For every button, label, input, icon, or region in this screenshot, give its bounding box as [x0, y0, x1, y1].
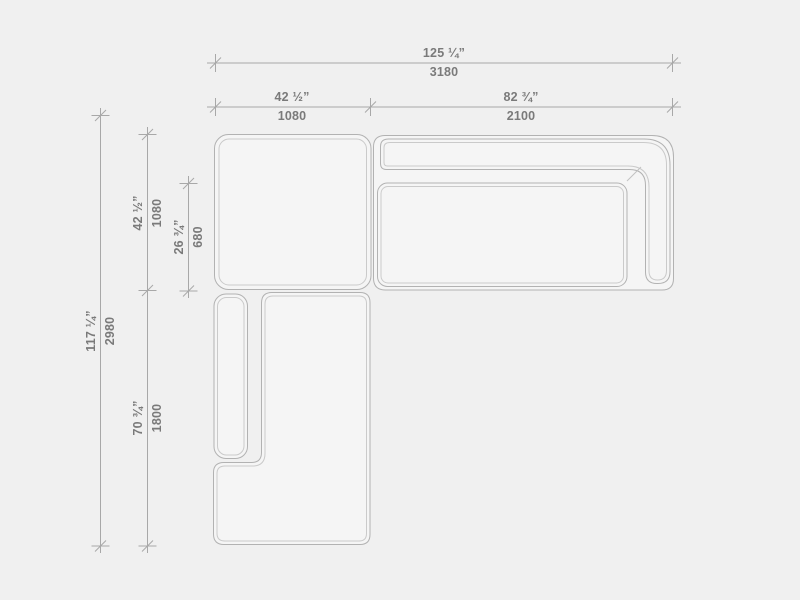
dim-chaise-length-inches: 70 ¾”	[132, 400, 145, 435]
dim-overall-depth-mm: 2980	[104, 316, 117, 345]
chaise-module	[214, 293, 371, 545]
sofa-seat-cushion-outline	[378, 183, 628, 287]
dim-top-module-depth-label: 42 ½” 1080	[132, 195, 164, 230]
dimension-lines	[92, 54, 682, 553]
dim-chaise-length-label: 70 ¾” 1800	[132, 400, 164, 435]
dim-left-module-width-label: 42 ½” 1080	[274, 91, 309, 123]
drawing-svg	[0, 0, 800, 600]
sofa-module	[374, 136, 674, 291]
dim-sofa-width-mm: 2100	[507, 110, 536, 123]
dim-seat-depth-mm: 680	[192, 226, 205, 247]
dim-overall-depth-inches: 117 ¼”	[85, 310, 98, 352]
dim-top-module-depth-inches: 42 ½”	[132, 195, 145, 230]
dim-overall-width-label: 125 ¼” 3180	[423, 47, 465, 79]
dim-overall-depth-label: 117 ¼” 2980	[85, 310, 117, 352]
dim-seat-depth-label: 26 ¾” 680	[173, 219, 205, 254]
dim-chaise-length-mm: 1800	[151, 404, 164, 433]
dim-top-module-depth-mm: 1080	[151, 198, 164, 227]
dim-left-module-width-inches: 42 ½”	[274, 91, 309, 104]
dim-sofa-width-inches: 82 ¾”	[503, 91, 538, 104]
dim-overall-width-inches: 125 ¼”	[423, 47, 465, 60]
ottoman-module	[215, 135, 372, 290]
dim-seat-depth-inches: 26 ¾”	[173, 219, 186, 254]
chaise-backrest-outline	[214, 294, 248, 459]
dim-left-module-width-mm: 1080	[278, 110, 307, 123]
ottoman-outline	[215, 135, 372, 290]
dim-sofa-width-label: 82 ¾” 2100	[503, 91, 538, 123]
dim-overall-width-mm: 3180	[430, 66, 459, 79]
sofa-dimension-drawing: 125 ¼” 3180 42 ½” 1080 82 ¾” 2100 117 ¼”…	[0, 0, 800, 600]
